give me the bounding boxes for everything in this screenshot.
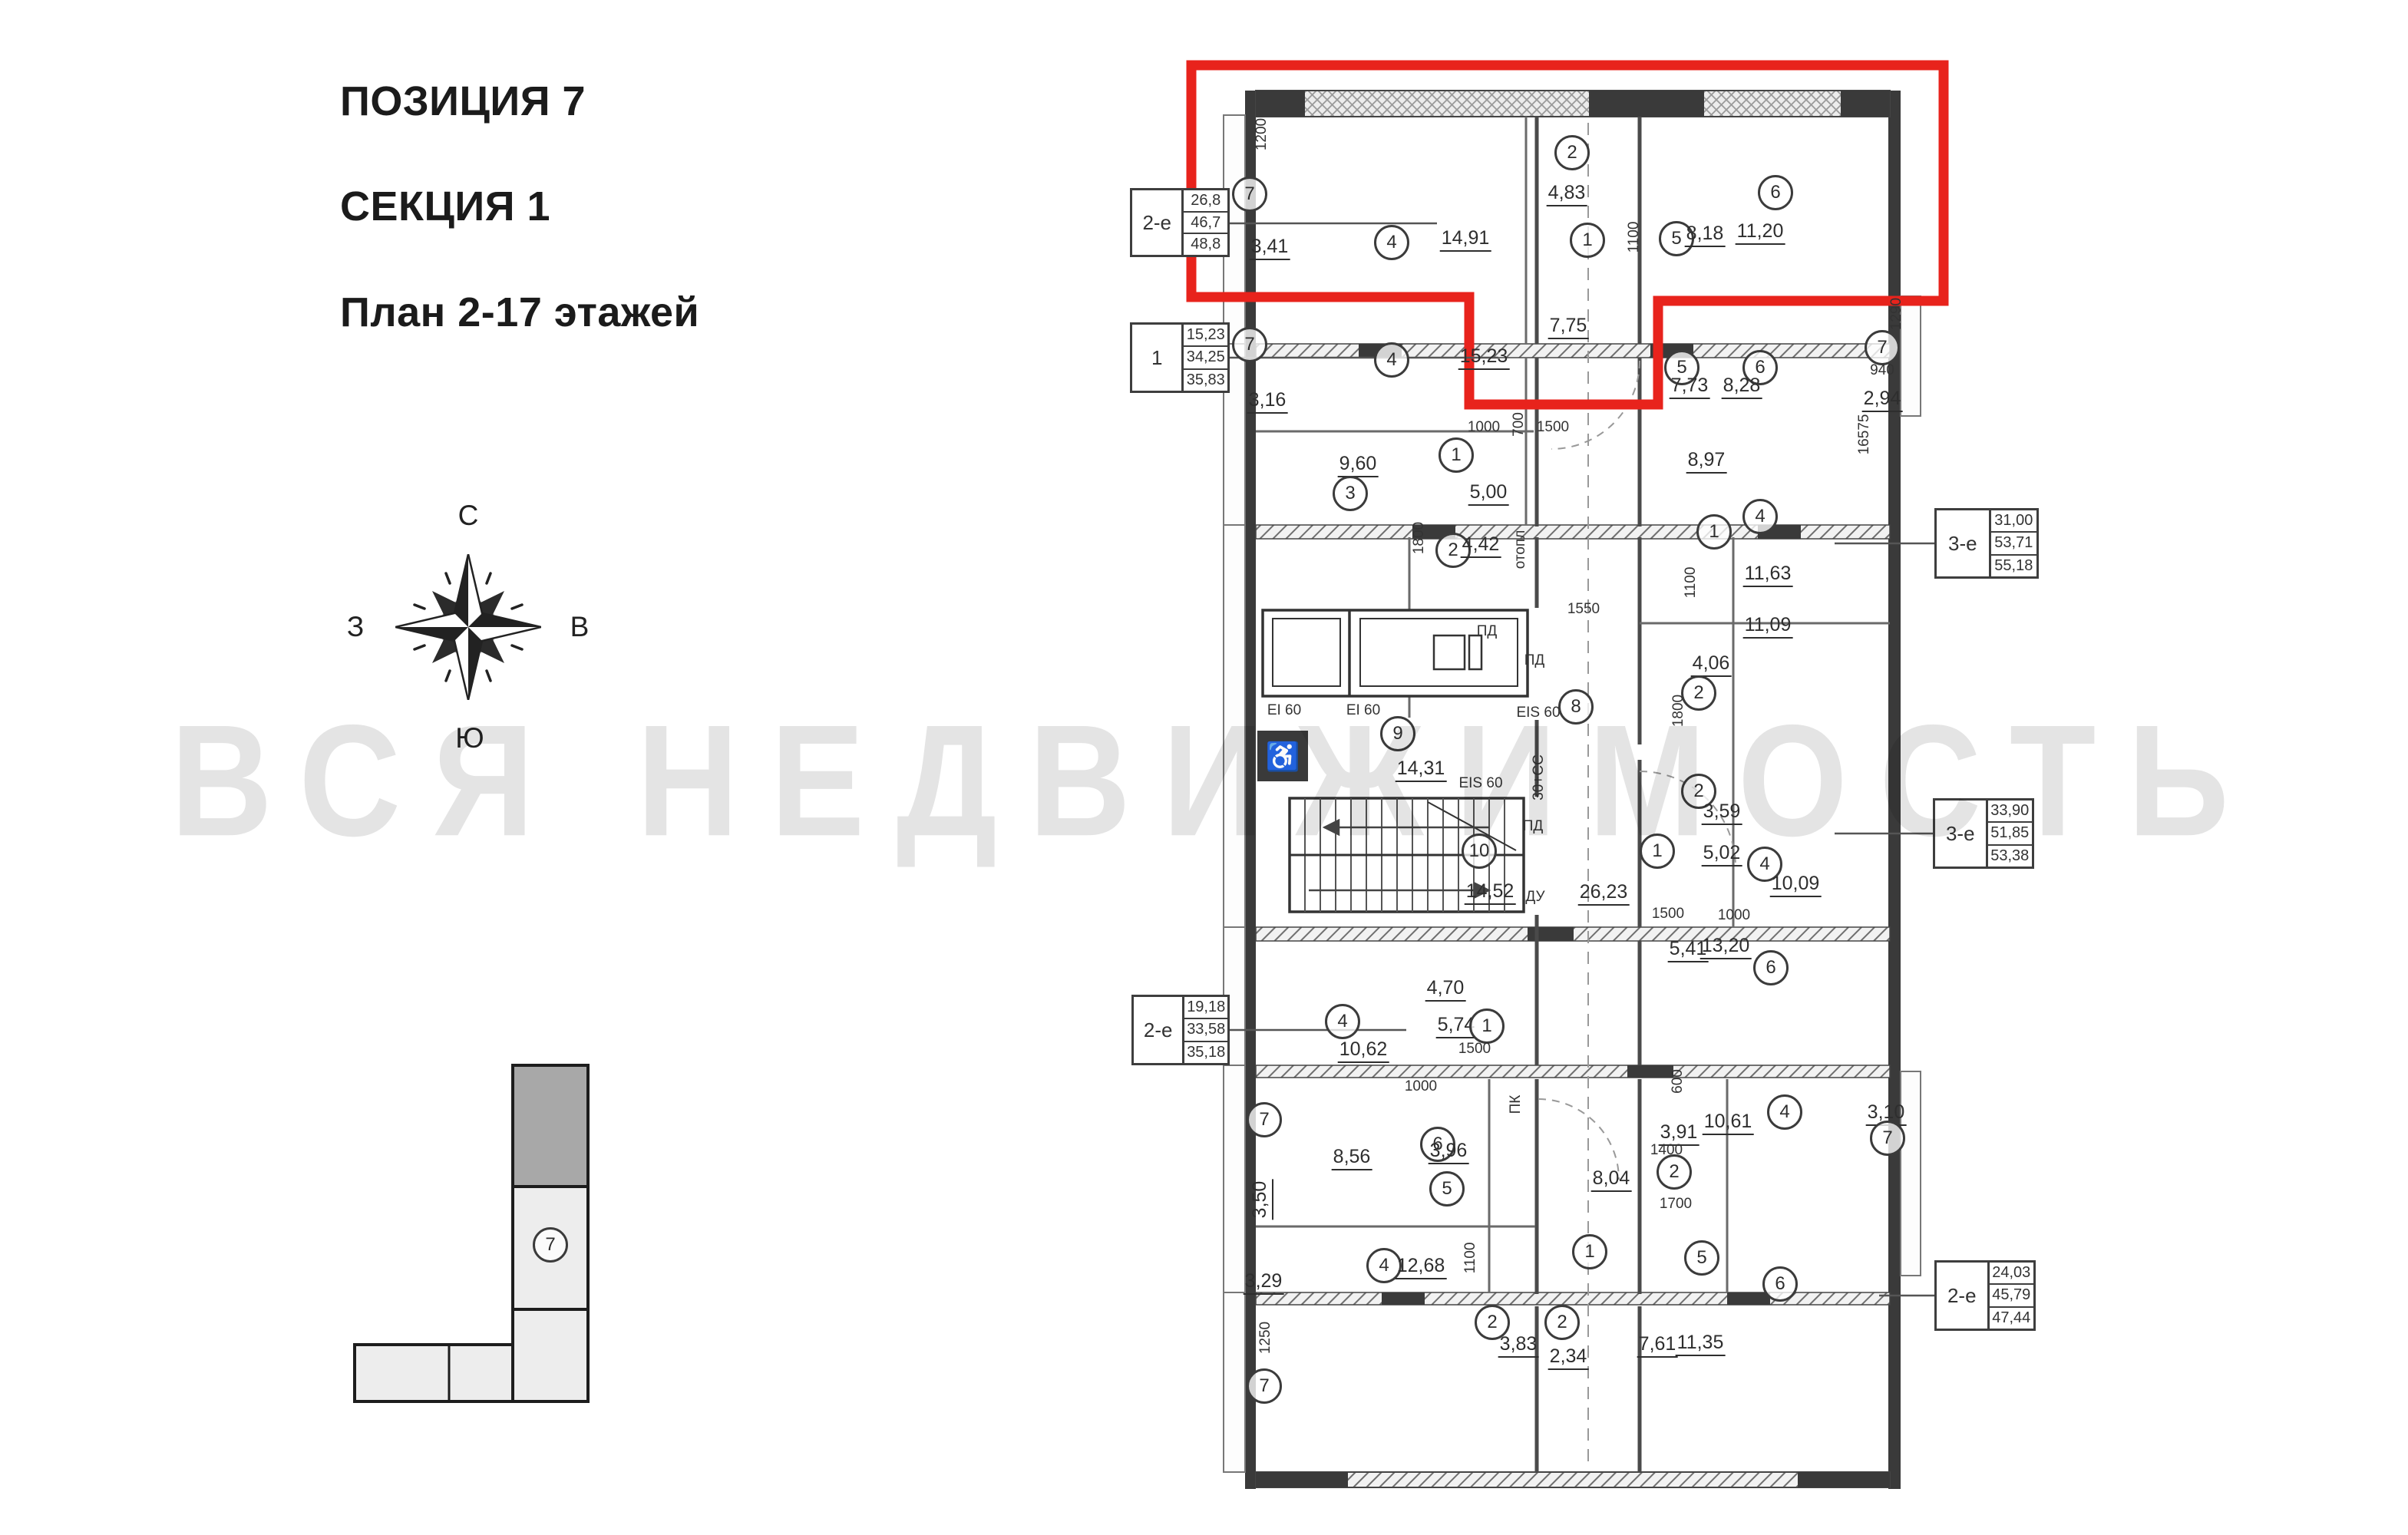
compass-south-label: Ю <box>455 722 484 754</box>
page-title-section: СЕКЦИЯ 1 <box>340 185 699 229</box>
compass-north-label: С <box>458 500 479 532</box>
page-title-floors: План 2-17 этажей <box>340 291 699 335</box>
compass-west-label: З <box>347 611 364 643</box>
highlighted-apartment-outline <box>1191 65 1944 404</box>
compass-east-label: В <box>570 611 590 643</box>
floor-plan-page: ПОЗИЦИЯ 7 СЕКЦИЯ 1 План 2-17 этажей С В … <box>0 0 2408 1535</box>
compass-star-icon <box>395 554 541 700</box>
minimap-position-number: 7 <box>533 1227 568 1263</box>
page-title-position: ПОЗИЦИЯ 7 <box>340 80 699 124</box>
title-block: ПОЗИЦИЯ 7 СЕКЦИЯ 1 План 2-17 этажей <box>340 80 699 335</box>
compass-rose: С В Ю З <box>349 499 587 756</box>
